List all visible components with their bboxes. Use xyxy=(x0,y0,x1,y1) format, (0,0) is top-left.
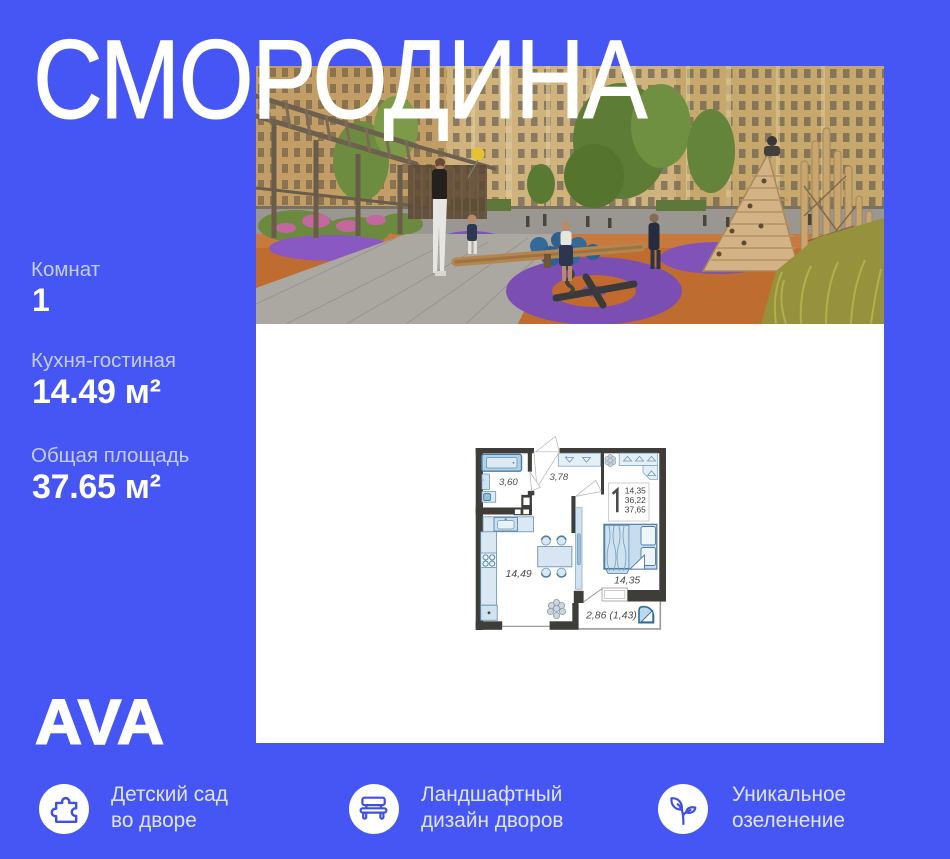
svg-text:3,78: 3,78 xyxy=(550,472,569,483)
svg-text:2,86 (1,43): 2,86 (1,43) xyxy=(585,610,637,622)
svg-text:14,49: 14,49 xyxy=(506,568,532,580)
svg-text:14,35: 14,35 xyxy=(625,485,646,495)
svg-text:3,60: 3,60 xyxy=(499,477,518,488)
svg-text:36,22: 36,22 xyxy=(625,495,646,505)
svg-text:14,35: 14,35 xyxy=(614,575,640,587)
svg-text:37,65: 37,65 xyxy=(625,505,646,515)
